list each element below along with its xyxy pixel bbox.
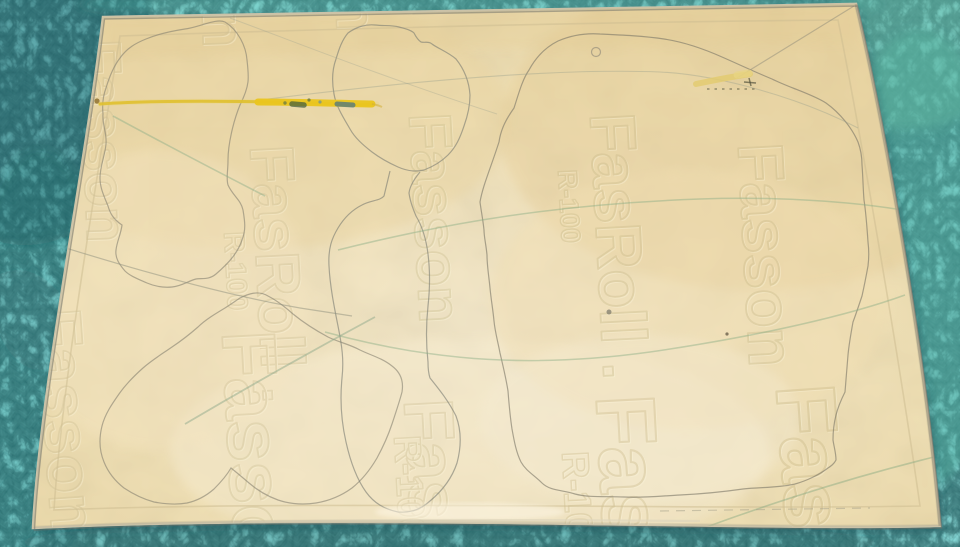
svg-text:Fasson: Fasson: [205, 328, 304, 547]
svg-text:FasRoll .: FasRoll .: [576, 111, 662, 381]
svg-text:Fasson: Fasson: [724, 141, 808, 369]
svg-text:Fasson: Fasson: [396, 111, 474, 324]
svg-text:R-100: R-100: [217, 231, 253, 312]
